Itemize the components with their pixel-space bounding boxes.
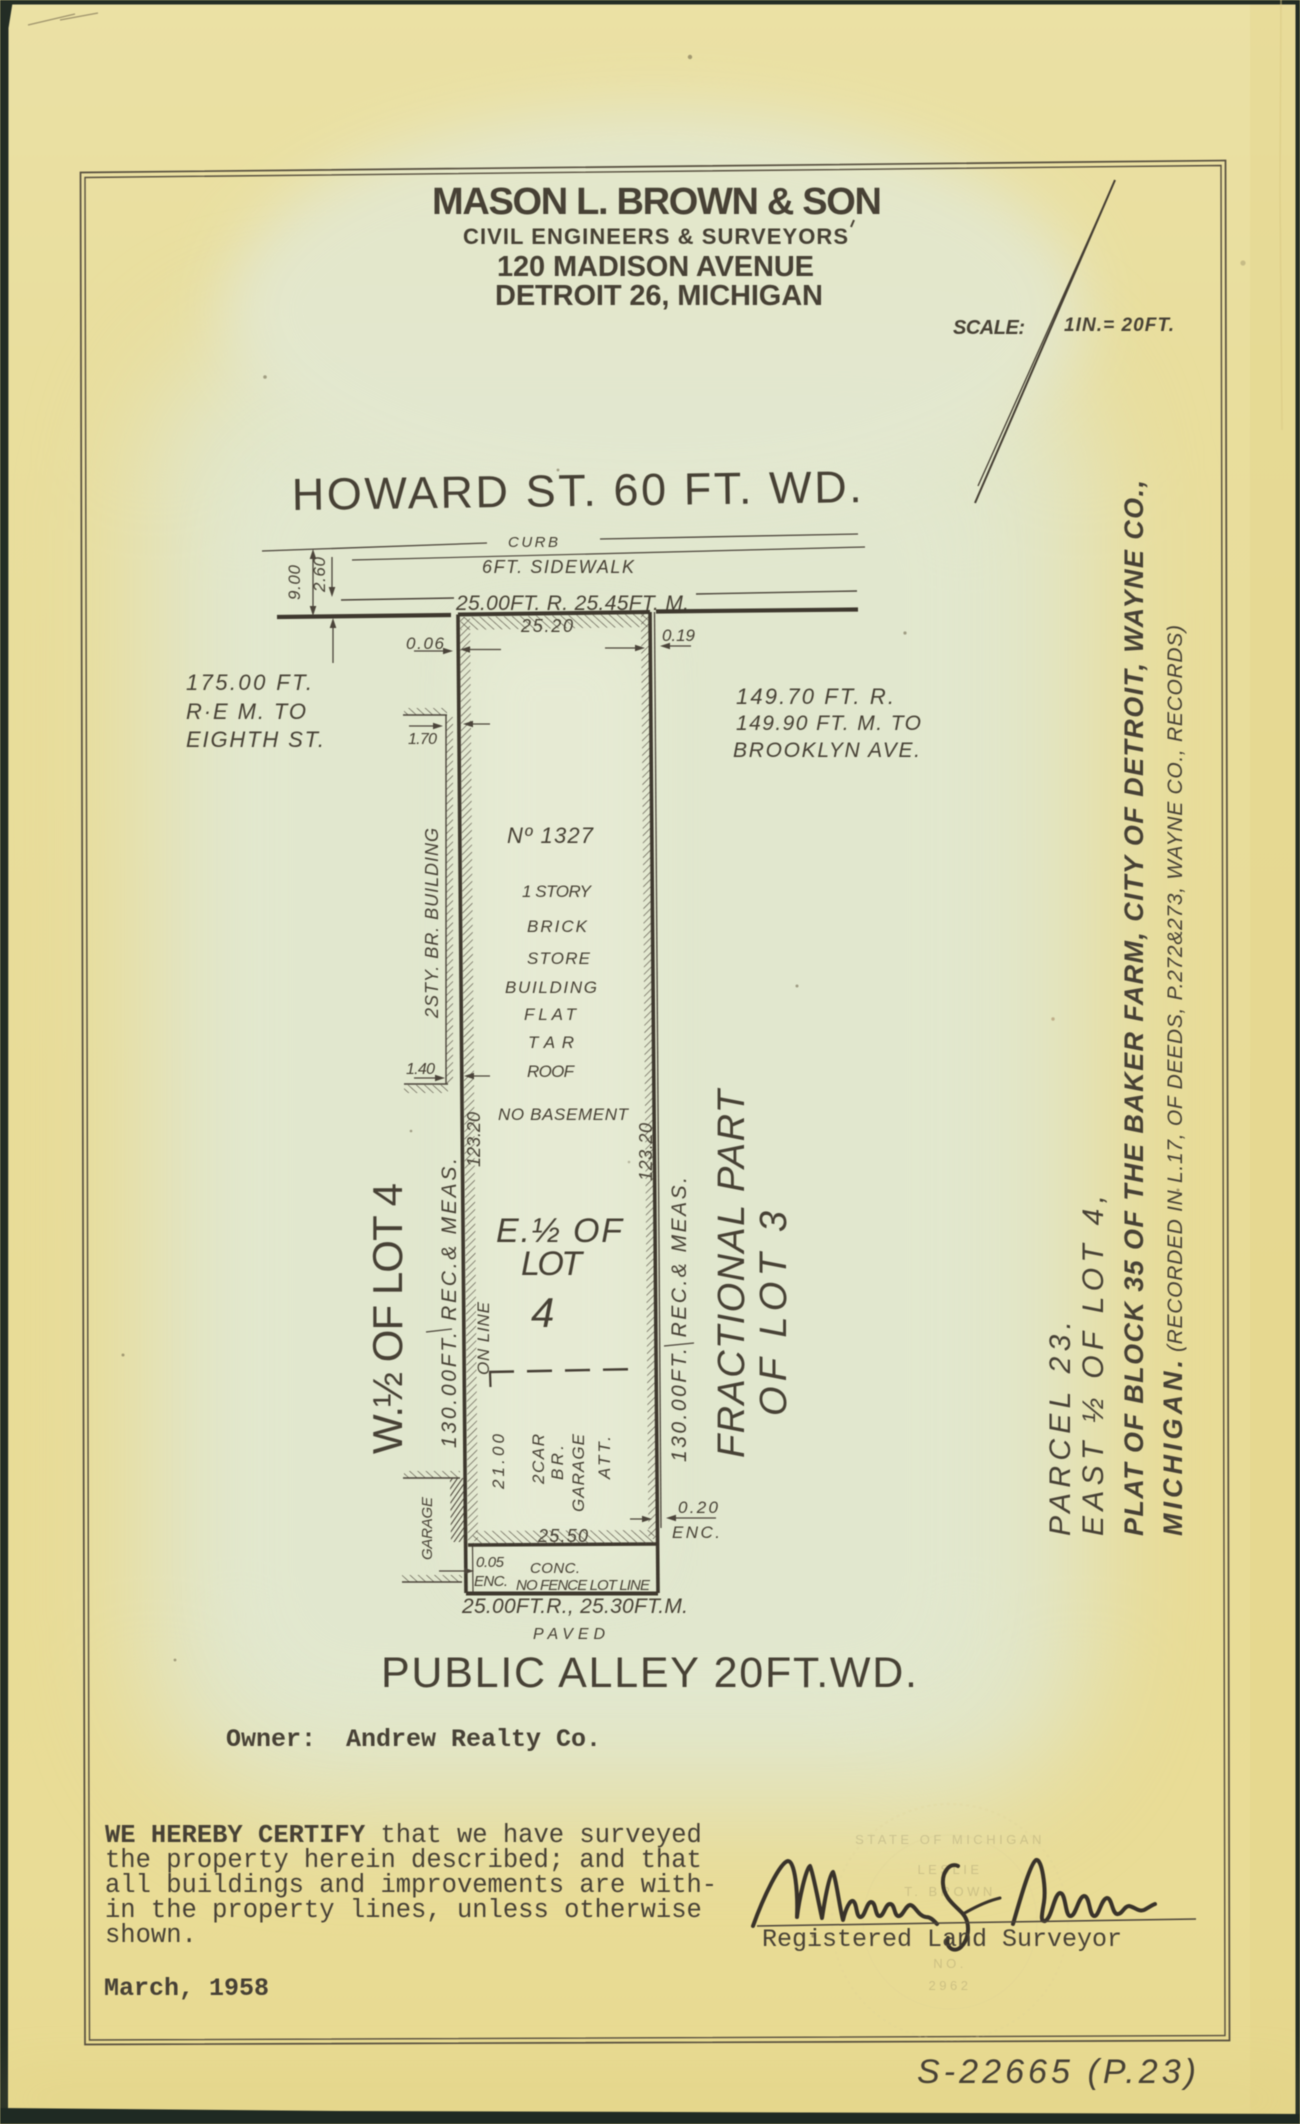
svg-text:0.06: 0.06 <box>406 634 445 653</box>
svg-text:TAR: TAR <box>528 1033 574 1052</box>
svg-text:FLAT: FLAT <box>524 1005 578 1024</box>
svg-text:120 MADISON AVENUE: 120 MADISON AVENUE <box>497 251 814 283</box>
svg-text:NO FENCE LOT LINE: NO FENCE LOT LINE <box>516 1577 651 1594</box>
svg-text:1IN.= 20FT.: 1IN.= 20FT. <box>1064 315 1174 336</box>
svg-text:175.00 FT.: 175.00 FT. <box>186 670 312 695</box>
svg-text:Nº 1327: Nº 1327 <box>507 823 594 848</box>
svg-text:Owner: Andrew Realty Co.: Owner: Andrew Realty Co. <box>226 1725 601 1754</box>
svg-text:2CAR: 2CAR <box>529 1434 548 1485</box>
svg-text:March, 1958: March, 1958 <box>104 1974 269 2003</box>
svg-text:21.00: 21.00 <box>489 1433 508 1490</box>
svg-text:PUBLIC ALLEY 20FT.WD.: PUBLIC ALLEY 20FT.WD. <box>381 1649 917 1697</box>
svg-text:BR.: BR. <box>548 1445 567 1480</box>
svg-text:ON LINE: ON LINE <box>474 1301 493 1375</box>
svg-text:1.40: 1.40 <box>406 1061 435 1078</box>
svg-text:MICHIGAN.: MICHIGAN. <box>1158 1360 1188 1536</box>
svg-text:149.90 FT. M. TO: 149.90 FT. M. TO <box>736 712 921 735</box>
svg-text:GARAGE: GARAGE <box>569 1433 588 1512</box>
svg-text:1.70: 1.70 <box>408 731 437 748</box>
svg-text:ENC.: ENC. <box>474 1573 508 1590</box>
svg-text:130.00FT. REC.& MEAS.: 130.00FT. REC.& MEAS. <box>438 1158 461 1448</box>
svg-text:25.00FT.R., 25.30FT.M.: 25.00FT.R., 25.30FT.M. <box>461 1595 688 1618</box>
svg-text:1 STORY: 1 STORY <box>522 882 593 901</box>
svg-text:HOWARD ST. 60 FT. WD.: HOWARD ST. 60 FT. WD. <box>291 461 862 520</box>
svg-text:(RECORDED IN L.17, OF DEEDS, P: (RECORDED IN L.17, OF DEEDS, P.272&273, … <box>1164 625 1187 1352</box>
svg-text:2.60: 2.60 <box>310 556 329 593</box>
svg-text:0.19: 0.19 <box>662 626 696 645</box>
svg-text:LOT: LOT <box>521 1245 584 1283</box>
svg-text:0.05: 0.05 <box>476 1554 505 1571</box>
svg-text:ROOF: ROOF <box>527 1062 576 1081</box>
svg-text:0.20: 0.20 <box>678 1498 719 1517</box>
svg-text:MASON L. BROWN & SON: MASON L. BROWN & SON <box>432 181 882 223</box>
svg-text:R·E M. TO: R·E M. TO <box>186 699 306 724</box>
svg-text:GARAGE: GARAGE <box>419 1496 436 1560</box>
svg-text:CONC.: CONC. <box>530 1560 580 1577</box>
svg-text:EAST ½ OF LOT 4,: EAST ½ OF LOT 4, <box>1077 1195 1110 1536</box>
svg-text:ENC.: ENC. <box>672 1523 720 1542</box>
svg-text:PLAT OF BLOCK 35 OF THE BAKER: PLAT OF BLOCK 35 OF THE BAKER FARM, CITY… <box>1119 480 1149 1536</box>
svg-text:BRICK: BRICK <box>527 917 588 936</box>
svg-text:FRACTIONAL PART: FRACTIONAL PART <box>711 1087 753 1458</box>
svg-text:123.20: 123.20 <box>636 1123 656 1181</box>
svg-text:2962: 2962 <box>929 1978 972 1993</box>
svg-text:W.½ OF LOT 4: W.½ OF LOT 4 <box>364 1183 411 1454</box>
svg-text:Registered Land Surveyor: Registered Land Surveyor <box>762 1925 1122 1954</box>
svg-text:2STY. BR. BUILDING: 2STY. BR. BUILDING <box>422 828 442 1019</box>
svg-text:NO.: NO. <box>933 1956 967 1971</box>
svg-text:STATE OF MICHIGAN: STATE OF MICHIGAN <box>855 1832 1045 1847</box>
svg-text:25.50: 25.50 <box>537 1526 588 1546</box>
svg-text:DETROIT 26, MICHIGAN: DETROIT 26, MICHIGAN <box>495 280 823 312</box>
svg-text:BROOKLYN AVE.: BROOKLYN AVE. <box>733 739 920 762</box>
svg-text:CIVIL ENGINEERS & SURVEYORS: CIVIL ENGINEERS & SURVEYORS <box>463 224 848 249</box>
svg-text:4: 4 <box>531 1289 554 1336</box>
svg-text:130.00FT. REC.& MEAS.: 130.00FT. REC.& MEAS. <box>668 1177 691 1462</box>
svg-text:123.20: 123.20 <box>464 1112 484 1167</box>
svg-text:shown.: shown. <box>105 1921 197 1950</box>
svg-text:9.00: 9.00 <box>285 564 304 600</box>
svg-text:SCALE:: SCALE: <box>953 317 1025 339</box>
svg-text:T. BROWN: T. BROWN <box>904 1884 996 1899</box>
svg-text:S-22665 (P.23): S-22665 (P.23) <box>917 2053 1196 2091</box>
svg-text:NO BASEMENT: NO BASEMENT <box>498 1105 630 1124</box>
svg-text:25.20: 25.20 <box>520 616 573 636</box>
svg-text:BUILDING: BUILDING <box>505 978 597 997</box>
svg-text:STORE: STORE <box>527 949 591 968</box>
